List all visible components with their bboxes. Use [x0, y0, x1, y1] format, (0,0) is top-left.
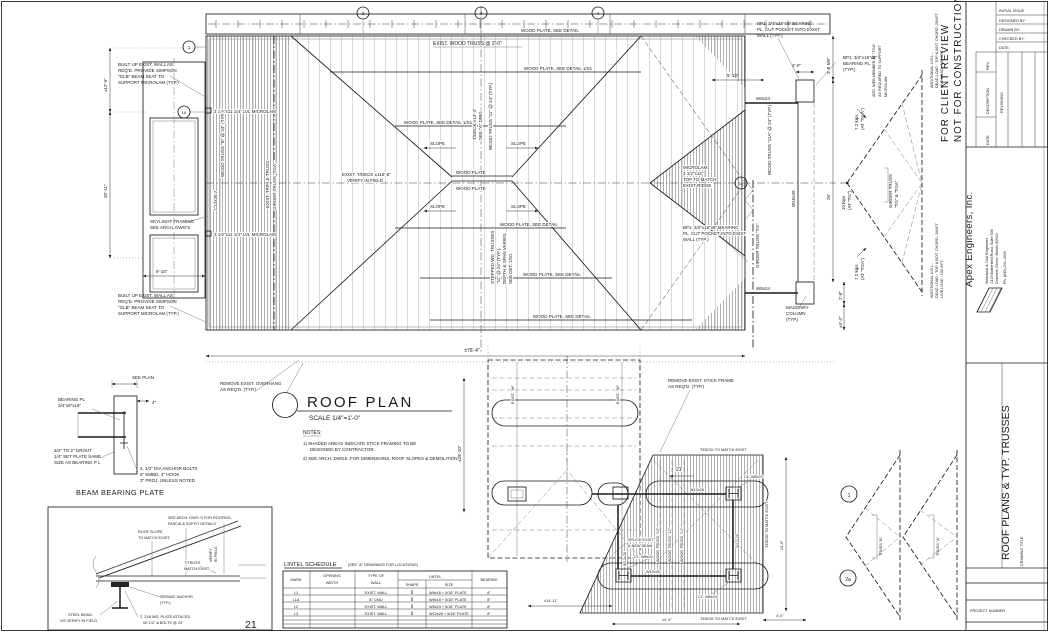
- stamp-line: FOR CLIENT REVIEW: [940, 24, 951, 142]
- plan-note: AS REQ'D. (TYP.): [668, 384, 705, 389]
- truss-bearing-detail: SEE ARCH. DWG.'S FOR ROOFING, FASCIA & S…: [48, 507, 272, 631]
- firm-address: Downers Grove, Illinois 60515: [995, 233, 999, 284]
- plan-label: T/DECK TO MATCH EXIST.: [700, 617, 747, 621]
- review-stamp: FOR CLIENT REVIEW NOT FOR CONSTRUCTION: [940, 0, 964, 142]
- detail-number: 21: [245, 619, 257, 631]
- revision-label: CHECKED BY:: [999, 37, 1025, 41]
- dimension: ±76'-4": [464, 348, 480, 354]
- plan-label: STEPPED WD. TRUSSES: [490, 231, 495, 284]
- dimension: ±14'-11": [544, 599, 558, 603]
- revision-label: DRAWN BY:: [999, 28, 1020, 32]
- ridge-label: WOOD PLATE: [456, 186, 486, 191]
- plan-label: EXIST. "W": [616, 384, 620, 404]
- revision-label: DESIGNED BY:: [999, 19, 1026, 23]
- note: 2) SEE ARCH. DWGS. FOR DIMENSIONS, ROOF …: [303, 456, 458, 461]
- cell-shape: I: [411, 605, 413, 610]
- slope-label: SLOPE: [430, 204, 445, 209]
- ridge-label: WOOD PLATE: [456, 170, 486, 175]
- plan-label: WOOD TRUSS "10": [656, 527, 660, 562]
- cell-type: EXIST. WALL: [365, 591, 388, 595]
- plan-label: WOOD PLATE, SEE DETAIL: [533, 314, 591, 319]
- plan-note: SPLICE EXIST.: [628, 538, 654, 542]
- slope-label: SLOPE: [511, 204, 526, 209]
- note: 1) SHADED AREAS INDICATE STICK FRAMING T…: [303, 441, 416, 446]
- plan-label: 3 1/2"x11 1/4" LVL MICROLAM: [214, 232, 276, 237]
- drawing-sheet: EXIST. WOOD TRUSS @ 2'-0" WOOD PLATE, SE…: [0, 0, 1050, 632]
- detail-label: BEARING PL: [58, 397, 86, 402]
- beam-label: W10x39: [791, 190, 796, 207]
- beam-bearing-plate-detail: SEE PLAN BEARING PL 3/4"x8"x16" 4" 3/4" …: [54, 375, 198, 497]
- cell-type: EXIST. WALL: [365, 605, 388, 609]
- plan-label: SKYLIGHT FRAMING: [150, 219, 195, 224]
- detail-reference: 21: [676, 467, 682, 473]
- firm-phone: Ph. (630) 241-1600: [1003, 251, 1007, 284]
- firm-address: 1319 Butterfield Road, Suite 500: [990, 229, 994, 284]
- truss-mark: 1: [848, 493, 851, 499]
- column-header: WIDTH: [326, 581, 339, 585]
- dimension: 26': [826, 194, 831, 200]
- load-label: (AT "TGA"): [860, 257, 865, 280]
- load-label: 7.2 kips: [854, 264, 859, 280]
- detail-note: 2, 1/2" DIA ANCHOR BOLTS: [140, 466, 198, 471]
- detail-note: SEE ARCH. DWG.'S FOR ROOFING,: [168, 516, 232, 520]
- plan-label: WOOD PLATE, SEE DETAIL: [521, 28, 579, 33]
- cell-type: 8" CMU: [369, 598, 382, 602]
- dimension: 5'-10": [727, 73, 739, 78]
- plan-label: C12x20.7: [213, 190, 218, 210]
- revisions-title: REVISIONS: [1000, 92, 1004, 113]
- dimension: 2'-8": [838, 291, 843, 300]
- plan-label: SEE DET. 1/S1: [508, 253, 513, 284]
- cell-bearing: 8": [487, 598, 491, 602]
- dimension: 2'-8 5/8": [826, 57, 831, 74]
- plan-label: EXIST. "W": [511, 384, 515, 404]
- plan-label: WOOD PLATE, SEE DETAIL 1/S1: [404, 120, 473, 125]
- detail-note: IN FIELD: [214, 546, 218, 562]
- diagram-note: ADD. WEB MEMBER AT "TGA": [872, 43, 876, 97]
- detail-label: SEE PLAN: [132, 375, 154, 380]
- beam-label: W8x24: [756, 96, 771, 101]
- plan-label: SEE "A" DWG.: [478, 110, 483, 140]
- plan-note: SUPPORT MICROLAM (TYP.): [118, 311, 179, 316]
- column-label: C1: W8x24: [634, 555, 653, 559]
- slope-label: SLOPE: [430, 141, 445, 146]
- cell-bearing: 8": [487, 605, 491, 609]
- plan-label: EXIST. WOOD TRUSS @ 2'-0": [433, 41, 502, 47]
- plan-note: BP1: 3/4"x16"x8" BEARING: [757, 21, 813, 26]
- plan-note: WALL (TYP.): [757, 33, 783, 38]
- plan-label: EXIST. TRIPLE TRUSS: [265, 161, 270, 208]
- column-header: SIZE: [445, 583, 454, 587]
- cell-size: W8x24 + 5/16" PLATE: [429, 605, 467, 609]
- plan-note: PL. CUT POCKET INTO EXIST.: [683, 231, 747, 236]
- roof-plan-drawing: EXIST. WOOD TRUSS @ 2'-0" WOOD PLATE, SE…: [0, 0, 1050, 632]
- load-label: 7.2 kips: [854, 114, 859, 130]
- schedule-subtitle: (SEE "A" DRAWINGS FOR LOCATIONS): [348, 563, 419, 567]
- firm-tagline: Structural & Civil Engineers: [985, 238, 989, 284]
- plan-label: WOOD PLATE, SEE DETAIL 1/S1: [524, 66, 593, 71]
- cell-size: W8x18 + 5/16" PLATE: [429, 591, 467, 595]
- detail-note: 3/4" TO 2" GROUT: [54, 448, 92, 453]
- plan-note: "GLB" BEAM SEAT TO: [118, 74, 165, 79]
- beam-label: W12x26: [736, 534, 740, 548]
- plan-note: BP1: 3/4"x16"x8" BEARING: [683, 225, 739, 230]
- column-header: MARK: [291, 578, 302, 582]
- column-header: SHAPE: [406, 583, 419, 587]
- stamp-line: NOT FOR CONSTRUCTION: [953, 0, 964, 142]
- roof-plan-title: NORTH ROOF PLAN SCALE 1/4"=1'-0" NOTES: …: [273, 363, 458, 461]
- revision-col-header: DATE: [986, 135, 990, 145]
- cell-shape: I: [411, 612, 413, 617]
- plan-note: REMOVE EXIST. OVERHANG: [220, 381, 282, 386]
- note: DESIGNED BY CONTRACTOR.: [310, 447, 375, 452]
- plan-label: "11" @ 24" (TYP.),: [496, 248, 501, 284]
- plan-note: & NEW BEAM: [628, 544, 652, 548]
- cell-bearing: 8": [487, 591, 491, 595]
- plan-note: 3 1/2"x14": [683, 171, 704, 176]
- plan-note: EXIST RIDGE: [683, 183, 711, 188]
- detail-note: 8" EMBD, 4" HOOK: [140, 472, 179, 477]
- load-label: (AT "TG"): [847, 190, 852, 210]
- title-block: FOR CLIENT REVIEW NOT FOR CONSTRUCTION I…: [940, 0, 1048, 630]
- diagram-label: GIRDER TRUSS: [888, 174, 893, 208]
- plan-label: WOOD TRUSS "B" @ 24" (TYP.): [220, 111, 225, 177]
- firm-name: Apex Engineers, Inc.: [964, 191, 975, 287]
- grid-bubble: 2: [362, 11, 365, 16]
- detail-note: 3" PROJ. UNLESS NOTED: [140, 478, 196, 483]
- detail-title: BEAM BEARING PLATE: [76, 488, 164, 497]
- dimension: 4": [152, 400, 157, 405]
- plan-note: COLUMN: [786, 311, 806, 316]
- cell-mark: L2: [294, 605, 298, 609]
- grid-bubble: 1A: [182, 111, 187, 115]
- plan-label: WOOD TRUSS "11" @ 24" (TYP.): [488, 82, 493, 150]
- detail-note: ROOF SLOPE: [138, 530, 163, 534]
- diagram-note: MICROLAM: [884, 77, 888, 97]
- diagram-label: "TG" & "TGA": [894, 180, 899, 208]
- column-header: WALL: [371, 581, 381, 585]
- plan-note: REQ'D. PROVIDE SIMPSON: [118, 299, 177, 304]
- plan-label: VERIFY IN FIELD: [347, 178, 384, 183]
- diagram-note: ADDITIONAL U.D.L.:: [930, 262, 934, 298]
- diagram-note: AS REQUIRED TO SUPPORT: [878, 45, 882, 97]
- column-header: OPENING: [323, 574, 341, 578]
- beam-label: W12x26: [690, 488, 704, 492]
- revision-col-header: DESCRIPTION: [986, 88, 990, 114]
- view-scale: SCALE 1/4"=1'-0": [309, 415, 361, 422]
- plan-note: AS REQ'D. (TYP.): [220, 387, 257, 392]
- cell-bearing: 8": [487, 612, 491, 616]
- plan-label: SEE ARCH. DWG'S.: [150, 225, 191, 230]
- detail-note: STEEL BEAM: [68, 613, 92, 617]
- detail-note: W/ 1/2" ø BOLTS @ 24": [143, 621, 184, 625]
- plan-note: "GLB" BEAM SEAT TO: [118, 305, 165, 310]
- cell-size: W12x26 + 5/16" PLATE: [429, 612, 469, 616]
- cell-shape: I: [411, 591, 413, 596]
- detail-note: (TYP.): [160, 601, 171, 605]
- beam-label: W8x24: [756, 286, 771, 291]
- beam-label: W12x26: [623, 552, 627, 566]
- plan-label: EXIST. T/DECK ±118'-8": [342, 172, 391, 177]
- detail-note: SEISMIC ANCHOR: [160, 595, 193, 599]
- drawing-title-label: DRAWING TITLE: [1020, 536, 1024, 566]
- cell-mark: L3: [294, 612, 298, 616]
- plan-label: WOOD PLATE, SEE DETAIL: [500, 222, 558, 227]
- detail-note: T/TRUSS: [184, 561, 201, 565]
- grid-bubble: 1: [188, 45, 191, 50]
- detail-note: SIZE AS BEARING P L: [54, 460, 101, 465]
- column-header: LINTEL: [429, 575, 442, 579]
- plan-note: (TYP.): [843, 67, 856, 72]
- diagram-note: DEAD LOAD : TOP & BOT. CHORD: 20#/FT: [935, 12, 939, 88]
- drawing-title-block: ROOF PLANS & TYP. TRUSSES DRAWING TITLE …: [970, 363, 1024, 613]
- cell-type: EXIST. WALL: [365, 612, 388, 616]
- plan-label: T/DECK TO MATCH EXIST.: [765, 501, 769, 548]
- apex-logo: [977, 288, 1002, 312]
- diagram-note: DEAD LOAD : TOP & BOT. CHORD: 20#/FT: [935, 222, 939, 298]
- cell-mark: L1: [294, 591, 298, 595]
- plan-note: WALL (TYP.): [683, 237, 709, 242]
- plan-note: MICROLAM: [683, 165, 708, 170]
- detail-note: 1/S VERIFY IN FIELD: [60, 619, 97, 623]
- column-header: BEARING: [480, 578, 497, 582]
- detail-note: FASCIA & SOFFIT DETAILS.: [168, 522, 217, 526]
- column-label: C1: W8x24: [698, 595, 717, 599]
- stick-framing-shaded-left: [206, 36, 291, 330]
- truss-label: TRUSS "B": [879, 536, 883, 556]
- dimension: ±4'-4": [838, 316, 843, 328]
- beam-label: W12x26: [646, 570, 660, 574]
- dimension: 2'-0": [792, 63, 801, 68]
- plan-note: REMOVE EXIST. STICK FRAME: [668, 378, 734, 383]
- plan-label: GIRDER TRUSS "TGA": [272, 162, 277, 210]
- cell-shape: I: [411, 598, 413, 603]
- plan-note: SUPPORT MICROLAM (TYP.): [118, 80, 179, 85]
- firm-block: Apex Engineers, Inc. Structural & Civil …: [964, 191, 1007, 312]
- dimension: 6'-10": [156, 269, 168, 274]
- notes-title: NOTES:: [303, 430, 322, 436]
- truss-label: TRUSS "A": [936, 536, 940, 556]
- dimension: ±29'-10": [457, 445, 462, 462]
- plan-note: REQ'D. PROVIDE SIMPSON: [118, 68, 177, 73]
- plan-note: MASONRY: [786, 305, 809, 310]
- dimension: 14'-0": [662, 618, 672, 622]
- north-label: NORTH: [285, 403, 289, 417]
- plan-label: WOOD TRUSS "12": [668, 527, 672, 562]
- plan-note: PL. CUT POCKET INTO EXIST.: [757, 27, 821, 32]
- dimension: ±12'-5": [103, 78, 108, 92]
- cell-mark: L1A: [293, 598, 300, 602]
- diagram-note: ADDITIONAL U.D.L.:: [930, 52, 934, 88]
- plan-label: DEPTH & SPAN VARIES,: [502, 233, 507, 284]
- lower-roof-plan: T/DECK TO MATCH EXIST. T/DECK TO MATCH E…: [457, 356, 806, 624]
- dimension: 4'-0": [776, 614, 784, 618]
- plan-label: T/DECK ±13'-4": [472, 108, 477, 140]
- main-roof-plan: EXIST. WOOD TRUSS @ 2'-0" WOOD PLATE, SE…: [92, 6, 877, 452]
- typical-truss-diagrams: 1 2a TRUSS "B" TRUSS "A": [840, 450, 957, 622]
- grid-bubble: 4: [597, 11, 600, 16]
- plan-label: GIRDER TRUSS "TG": [755, 223, 760, 268]
- load-label: (AT "TGA"): [860, 107, 865, 130]
- dimension: 20'-11": [103, 184, 108, 198]
- column-label: C1: W8x24: [744, 475, 763, 479]
- plan-label: WOOD TRUSS "14": [680, 527, 684, 562]
- detail-note: 2, 2X8 WD. PLATE ATTACED: [140, 615, 190, 619]
- diagram-note: LIVE LOAD : 150 #/FT.: [940, 259, 944, 298]
- detail-note: MATCH EXIST.: [184, 567, 210, 571]
- plan-label: WOOD TRUSS "11A" @ 24" (TYP.): [767, 104, 772, 175]
- schedule-title: LINTEL SCHEDULE: [284, 562, 337, 568]
- plan-note: BUILT UP EXIST. WALL AS: [118, 62, 173, 67]
- plan-note: (TYP.): [786, 317, 799, 322]
- plan-label: T/DECK TO MATCH EXIST.: [700, 448, 747, 452]
- drawing-title: ROOF PLANS & TYP. TRUSSES: [1000, 405, 1012, 560]
- slope-label: SLOPE: [511, 141, 526, 146]
- plan-label: WOOD PLATE, SEE DETAIL: [523, 272, 581, 277]
- plan-note: BUILT UP EXIST. WALL AS: [118, 293, 173, 298]
- detail-label: 3/4"x8"x16": [58, 403, 81, 408]
- cell-size: W8x18 + 5/16" PLATE: [429, 598, 467, 602]
- revision-label: INITIAL ISSUE: [999, 9, 1025, 13]
- detail-note: 1/4" SET PLATE SAME: [54, 454, 101, 459]
- truss-mark: 2a: [845, 577, 851, 583]
- column-header: TYPE OF: [368, 574, 385, 578]
- grid-bubble: 3: [480, 11, 483, 16]
- plan-note: TOP TO MATCH: [683, 177, 716, 182]
- lintel-schedule: LINTEL SCHEDULE (SEE "A" DRAWINGS FOR LO…: [283, 562, 507, 628]
- revision-block: INITIAL ISSUE DESIGNED BY: DRAWN BY: CHE…: [976, 2, 1048, 147]
- detail-note: VERIFY: [209, 548, 213, 562]
- load-label: 10 kips: [841, 195, 846, 210]
- project-number-label: PROJECT NUMBER: [970, 609, 1005, 613]
- dimension: 23'-6": [780, 540, 784, 550]
- plan-note: BEARING PL.: [843, 61, 871, 66]
- revision-label: DATE:: [999, 46, 1010, 50]
- grid-bubble: 13: [739, 182, 743, 186]
- revision-col-header: REV.: [986, 61, 990, 70]
- view-title: ROOF PLAN: [307, 394, 413, 411]
- detail-note: TO MATCH EXIST.: [138, 536, 170, 540]
